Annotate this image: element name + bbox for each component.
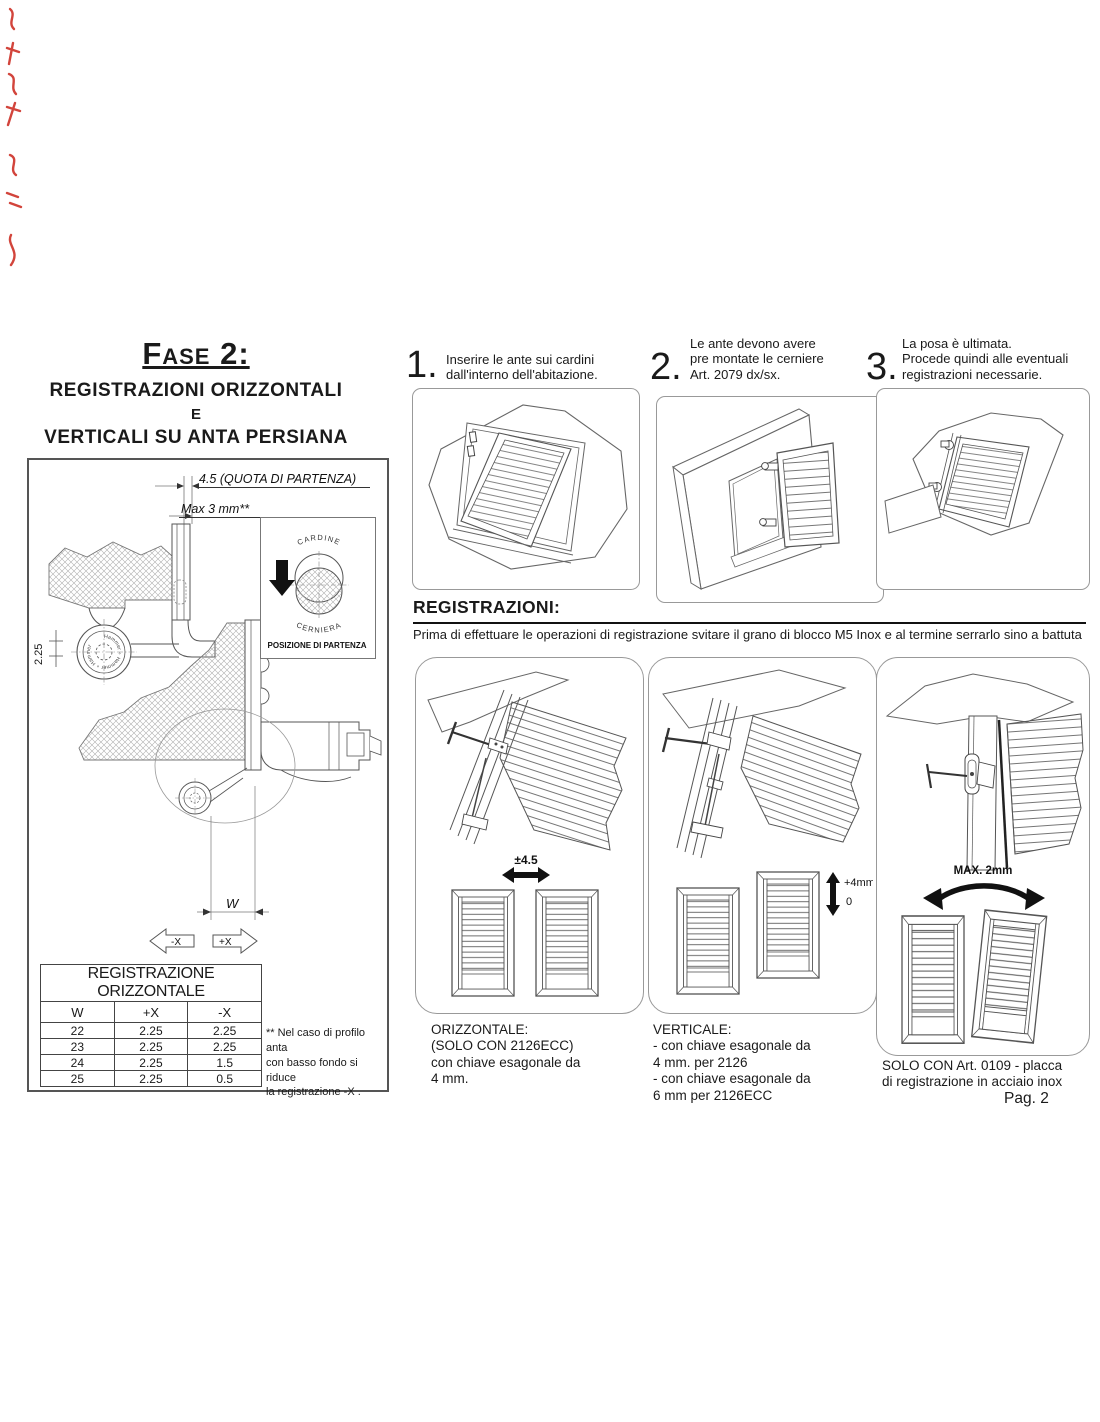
w-dim-label: W <box>226 896 240 911</box>
table-row: 222.252.25 <box>41 1023 262 1039</box>
adjustment-table: REGISTRAZIONE ORIZZONTALE W +X -X 222.25… <box>40 964 262 1087</box>
caption-placca: SOLO CON Art. 0109 - placca di registraz… <box>882 1058 1092 1091</box>
double-arrow-horizontal-icon <box>502 867 550 883</box>
vertical-dim-label-top: +4mm <box>844 877 873 889</box>
table-header-row: W +X -X <box>41 1002 262 1023</box>
cardine-label: CARDINE <box>296 533 342 547</box>
plus-x-label: +X <box>219 937 232 948</box>
col-header-minus-x: -X <box>188 1002 262 1023</box>
page-subtitle-2: E <box>30 406 362 423</box>
hinge-start-position-figure: CARDINE CERNIERA POSIZIONE DI PARTENZA <box>261 518 373 656</box>
step-1-caption: Inserire le ante sui cardini dall'intern… <box>446 352 626 383</box>
red-pen-marks-icon <box>2 6 38 272</box>
horizontal-dim-label: ±4.5 <box>514 853 538 867</box>
minus-x-label: -X <box>171 937 181 948</box>
step-3-caption: La posa è ultimata. Procede quindi alle … <box>902 336 1094 382</box>
step-1-figure <box>412 388 640 590</box>
col-header-plus-x: +X <box>114 1002 188 1023</box>
cerniera-label: CERNIERA <box>295 620 343 634</box>
step-3-figure <box>876 388 1090 590</box>
page-subtitle-1: REGISTRAZIONI ORIZZONTALI <box>30 380 362 402</box>
step-3-number: 3. <box>866 346 898 389</box>
step-2-caption: Le ante devono avere pre montate le cern… <box>690 336 870 382</box>
table-title-row: REGISTRAZIONE ORIZZONTALE <box>41 965 262 1002</box>
page-subtitle-3: VERTICALI SU ANTA PERSIANA <box>30 427 362 449</box>
double-arrow-vertical-icon <box>826 872 840 916</box>
registrazioni-heading: REGISTRAZIONI: <box>413 597 1086 624</box>
vertical-dim-label-bottom: 0 <box>846 896 852 908</box>
page-title: Fase 2: <box>30 336 362 372</box>
title-block: Fase 2: REGISTRAZIONI ORIZZONTALI E VERT… <box>30 336 362 449</box>
page-number: Pag. 2 <box>1004 1090 1049 1108</box>
dim-quota-label: 4.5 (QUOTA DI PARTENZA) <box>197 472 370 488</box>
step-2-number: 2. <box>650 346 682 389</box>
panel-horizontal-figure: ±4.5 <box>415 657 644 1014</box>
section-diagram-box: Hammer ∘ Hammer ∘ Hammer <box>27 458 389 1092</box>
plate-dim-label: MAX. 2mm <box>954 865 1013 877</box>
instruction-sheet-page: Fase 2: REGISTRAZIONI ORIZZONTALI E VERT… <box>0 0 1100 1422</box>
inset-posizione-partenza: CARDINE CERNIERA POSIZIONE DI PARTENZA <box>260 517 376 659</box>
dim-max3-label: Max 3 mm** <box>179 502 263 518</box>
panel-vertical-figure: +4mm 0 <box>648 657 877 1014</box>
curved-double-arrow-icon <box>935 886 1033 902</box>
table-row: 252.250.5 <box>41 1071 262 1087</box>
registrazioni-intro: Prima di effettuare le operazioni di reg… <box>413 627 1095 642</box>
caption-verticale: VERTICALE: - con chiave esagonale da 4 m… <box>653 1022 843 1104</box>
step-2-figure <box>656 396 884 603</box>
panel-plate-figure: MAX. 2mm <box>876 657 1090 1056</box>
step-1-number: 1. <box>406 344 438 387</box>
table-row: 242.251.5 <box>41 1055 262 1071</box>
inset-caption: POSIZIONE DI PARTENZA <box>268 641 367 650</box>
table-row: 232.252.25 <box>41 1039 262 1055</box>
table-title: REGISTRAZIONE ORIZZONTALE <box>41 965 262 1002</box>
dim-225-label: 2.25 <box>33 644 45 665</box>
down-arrow-icon <box>269 560 295 596</box>
caption-orizzontale: ORIZZONTALE: (SOLO CON 2126ECC) con chia… <box>431 1022 621 1088</box>
table-footnote: ** Nel caso di profilo anta con basso fo… <box>266 1026 374 1100</box>
svg-defs <box>0 0 2 2</box>
col-header-w: W <box>41 1002 115 1023</box>
